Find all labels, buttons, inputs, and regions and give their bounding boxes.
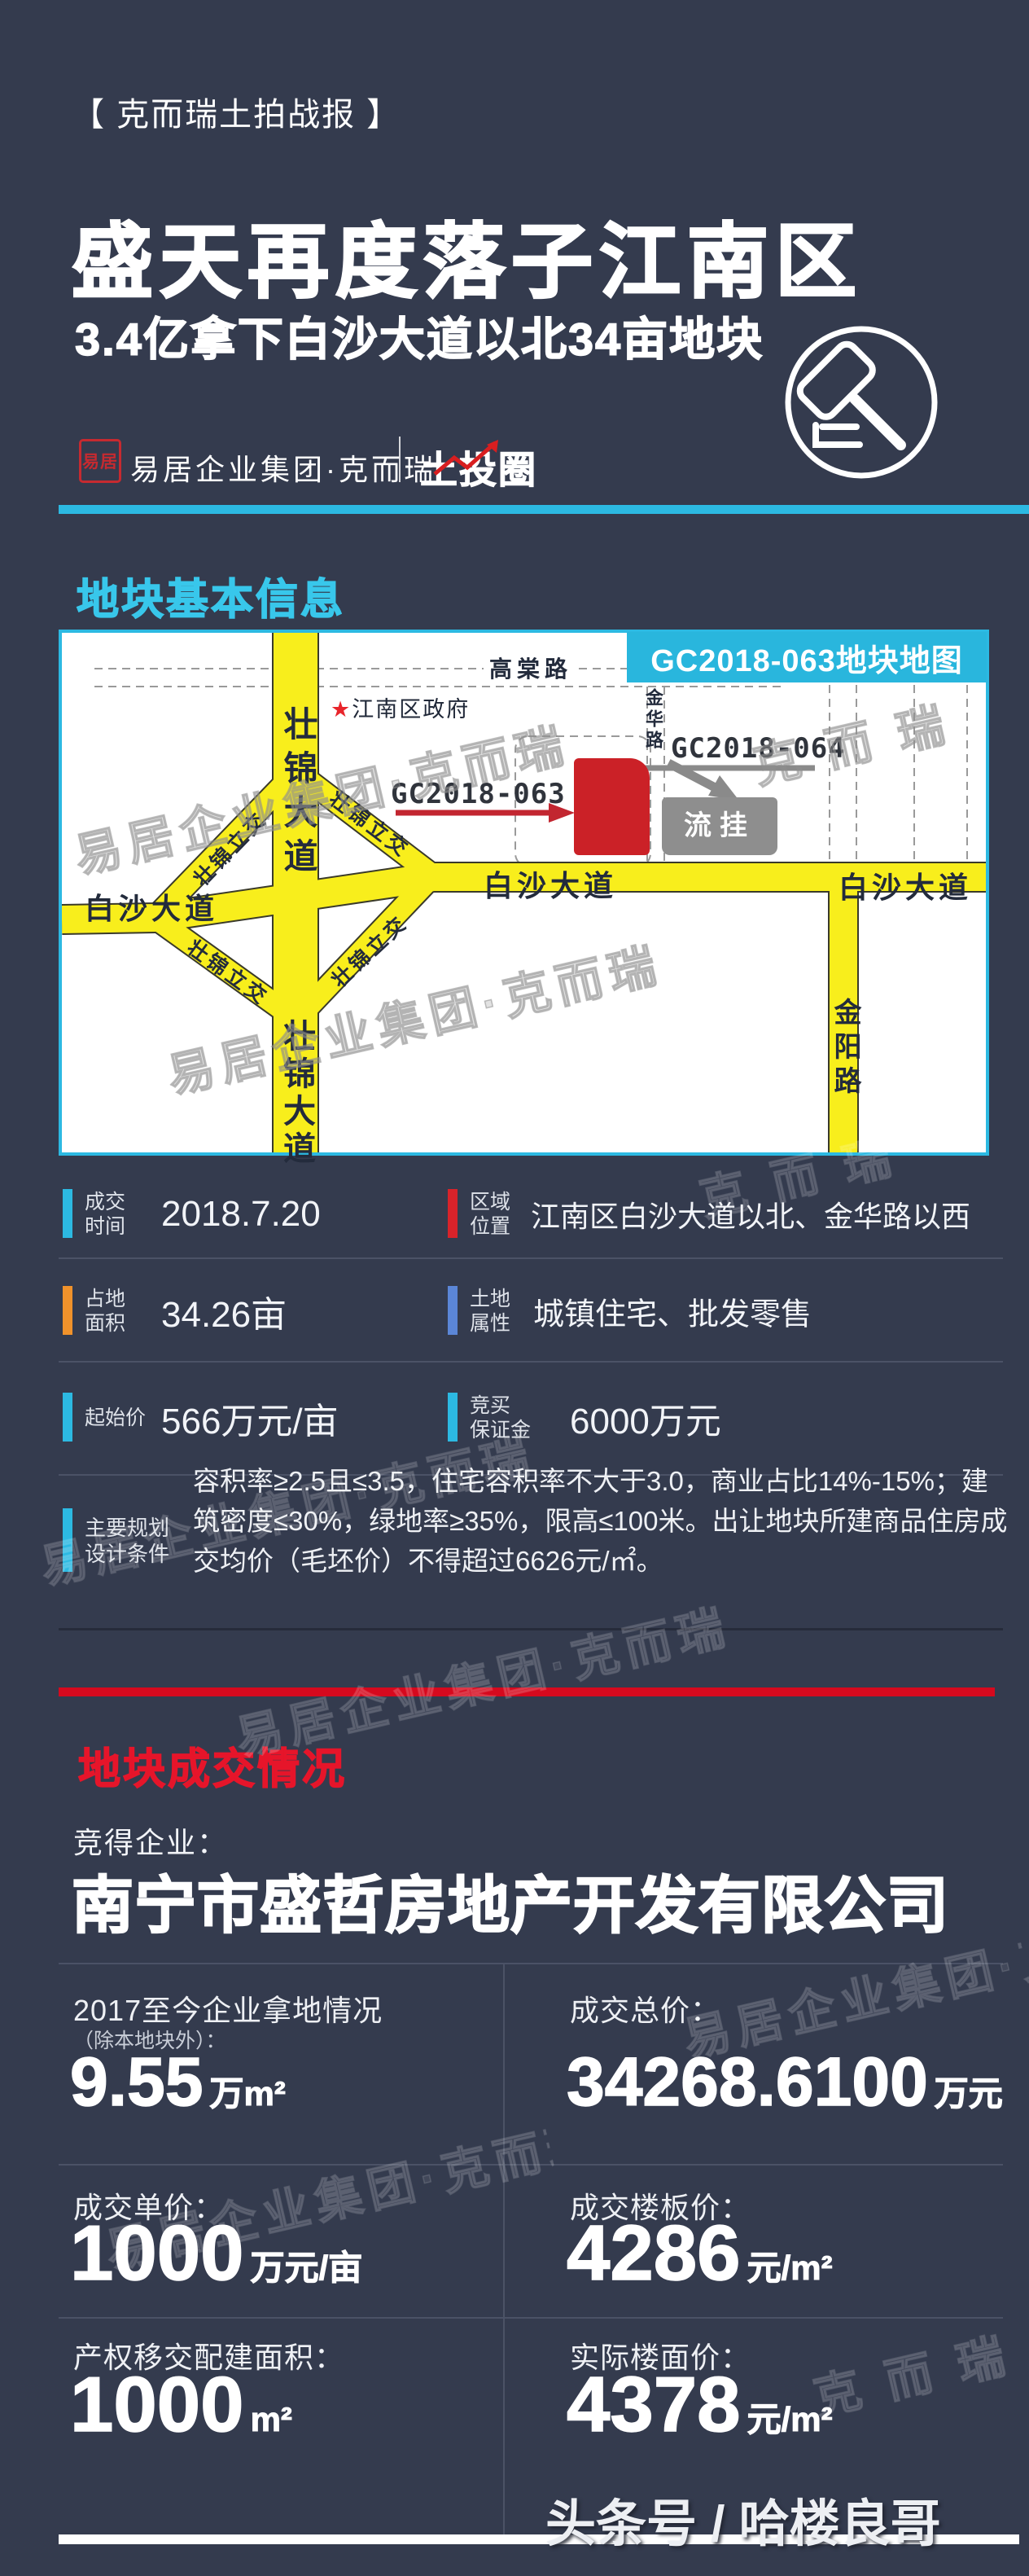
- stat-unit: 万元: [935, 2066, 1003, 2116]
- stat-label: 2017至今企业拿地情况: [73, 1987, 383, 2030]
- info-value: 6000万元: [570, 1392, 721, 1444]
- stat-unit: m²: [251, 2400, 292, 2439]
- stat-number: 9.55: [70, 2043, 204, 2122]
- accent-bar: [448, 1189, 458, 1238]
- info-label: 起始价: [85, 1406, 146, 1430]
- auction-gavel-icon: [773, 314, 961, 502]
- info-value: 566万元/亩: [161, 1392, 339, 1444]
- page-title: 盛天再度落子江南区: [72, 195, 863, 314]
- star-icon: ★: [331, 697, 352, 722]
- stat-value: 4378元/m²: [567, 2360, 833, 2450]
- brand-name: 易居企业集团·克而瑞: [130, 446, 436, 489]
- info-value: 34.26亩: [161, 1285, 287, 1337]
- info-label: 区域 位置: [470, 1190, 510, 1239]
- stat-number: 4378: [567, 2360, 741, 2450]
- header-accent-line: [59, 505, 1029, 514]
- accent-bar: [63, 1189, 72, 1238]
- road-label-jinyang: 金阳路: [825, 998, 865, 1120]
- stats-column-divider: [503, 1964, 505, 2539]
- stat-value: 9.55万m²: [70, 2043, 286, 2122]
- stat-unit: 万m²: [210, 2066, 286, 2116]
- section-divider: [59, 1628, 1003, 1630]
- brand-divider: [399, 437, 401, 482]
- info-row-land-use: 土地 属性 城镇住宅、批发零售: [444, 1284, 1014, 1338]
- info-value: 2018.7.20: [161, 1194, 321, 1235]
- stat-value: 34268.6100万元: [567, 2043, 1003, 2122]
- info-row-deal-date: 成交 时间 2018.7.20: [59, 1187, 441, 1241]
- landmark-government: ★江南区政府: [331, 691, 470, 723]
- row-divider: [59, 1257, 1003, 1259]
- parcel-gc2018-063: [574, 758, 650, 855]
- info-label: 土地 属性: [470, 1287, 510, 1336]
- stat-unit: 万元/亩: [251, 2240, 363, 2290]
- info-label: 占地 面积: [85, 1287, 125, 1336]
- author-watermark: 头条号 / 哈楼良哥: [545, 2482, 941, 2556]
- page-watermark: 克 而 瑞: [806, 2317, 1017, 2429]
- winner-company-name: 南宁市盛哲房地产开发有限公司: [72, 1855, 949, 1945]
- road-label-baisha-mid: 白沙大道: [484, 862, 617, 905]
- row-divider: [59, 1361, 1003, 1363]
- stat-unit: 元/m²: [747, 2240, 833, 2290]
- stat-value: 4286元/m²: [567, 2209, 833, 2298]
- report-tagline: 【 克而瑞土拍战报 】: [72, 88, 401, 135]
- info-value: 城镇住宅、批发零售: [533, 1289, 812, 1334]
- stat-number: 4286: [567, 2209, 741, 2298]
- page-subtitle: 3.4亿拿下白沙大道以北34亩地块: [75, 303, 764, 369]
- infographic-page: 【 克而瑞土拍战报 】 盛天再度落子江南区 3.4亿拿下白沙大道以北34亩地块 …: [0, 0, 1029, 2576]
- accent-bar: [63, 1393, 72, 1442]
- brand-seal-icon: 易居: [79, 439, 121, 483]
- stats-divider: [59, 2317, 1003, 2319]
- stat-number: 1000: [70, 2360, 244, 2450]
- accent-bar: [448, 1286, 458, 1335]
- section-title-basic-info: 地块基本信息: [77, 565, 345, 626]
- info-label: 成交 时间: [85, 1190, 125, 1239]
- info-row-start-price: 起始价 566万元/亩: [59, 1391, 441, 1445]
- road-label-gaotang: 高棠路: [484, 654, 578, 685]
- stat-value: 1000m²: [70, 2360, 292, 2450]
- info-row-area: 占地 面积 34.26亩: [59, 1284, 441, 1338]
- accent-bar: [63, 1286, 72, 1335]
- map-badge: GC2018-063地块地图: [627, 632, 987, 682]
- parcel-map: 流挂 高棠路 金华路 壮锦大道 壮锦大道 白沙大道 白沙大道 白沙大道 金阳路 …: [59, 630, 989, 1156]
- parcel-gc2018-064: 流挂: [662, 797, 777, 855]
- page-watermark: 易居企业集团·克而瑞: [228, 1588, 736, 1769]
- stock-zigzag-icon: [431, 438, 529, 484]
